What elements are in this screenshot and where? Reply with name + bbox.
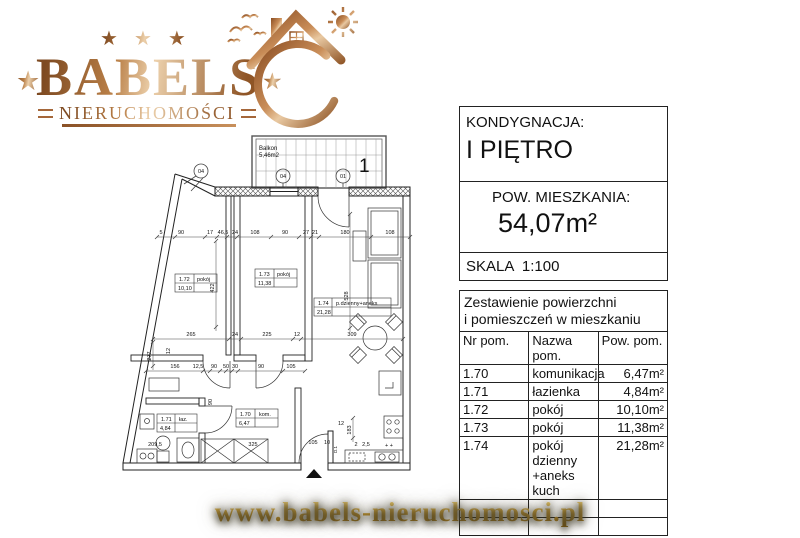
plan-label: 209,5 bbox=[148, 442, 162, 448]
scale-label: SKALA 1:100 bbox=[466, 258, 661, 275]
table-row: 1.73 pokój 11,38m² bbox=[460, 418, 668, 436]
entrance-marker bbox=[306, 469, 322, 478]
flyer-page: ★ ★ ★ ★ BABELS ★ NIERUCHOMOŚCI bbox=[0, 0, 800, 538]
plan-label: 50 bbox=[223, 364, 229, 370]
plan-label: 2,5 bbox=[362, 442, 370, 448]
plan-label: 12 bbox=[166, 348, 172, 354]
plan-label: 12,5 bbox=[193, 364, 204, 370]
plan-label: Balkon bbox=[259, 146, 277, 152]
cell-name: komunikacja bbox=[529, 364, 598, 382]
dimension-lines bbox=[144, 212, 412, 442]
plan-label: 90 bbox=[178, 230, 184, 236]
cell-nr: 1.70 bbox=[460, 364, 529, 382]
plan-label: 01 bbox=[340, 174, 346, 180]
plan-label: 24 bbox=[232, 230, 238, 236]
header-area: Pow. pom. bbox=[598, 331, 667, 364]
plan-label: D.1 bbox=[333, 446, 338, 454]
door-arcs bbox=[203, 196, 349, 463]
plan-label: 1.72 bbox=[179, 277, 190, 283]
plan-label: pokój bbox=[197, 277, 210, 283]
brand-subtitle: NIERUCHOMOŚCI bbox=[59, 103, 235, 124]
area-box: POW. MIESZKANIA: 54,07m² bbox=[460, 182, 667, 253]
cell-area: 4,84m² bbox=[598, 382, 667, 400]
double-line-ornament bbox=[38, 109, 53, 118]
plan-label: 11,38 bbox=[258, 281, 271, 287]
birds-icon bbox=[228, 15, 266, 42]
plan-label: 30 bbox=[232, 364, 238, 370]
scale-box: SKALA 1:100 bbox=[460, 253, 667, 280]
house-sun-icon bbox=[226, 2, 361, 134]
plan-label: 265 bbox=[186, 332, 195, 338]
bed bbox=[353, 208, 401, 308]
plan-label: 309 bbox=[347, 332, 356, 338]
plan-label: 156 bbox=[170, 364, 179, 370]
plan-label: 12 bbox=[338, 421, 344, 427]
floor-box: KONDYGNACJA: I PIĘTRO bbox=[460, 107, 667, 182]
area-label: POW. MIESZKANIA: bbox=[492, 189, 661, 206]
plan-label: 1.70 bbox=[240, 412, 251, 418]
plan-label: 1.73 bbox=[259, 272, 270, 278]
dining-table bbox=[350, 314, 403, 364]
plan-label: 12 bbox=[294, 332, 300, 338]
plan-label: 24 bbox=[232, 332, 238, 338]
cell-name: pokój bbox=[529, 418, 598, 436]
plan-label: 180 bbox=[340, 230, 349, 236]
cell-area: 6,47m² bbox=[598, 364, 667, 382]
plan-label: 10,10 bbox=[178, 286, 192, 292]
plan-label: 90 bbox=[258, 364, 264, 370]
agency-logo: ★ ★ ★ ★ BABELS ★ NIERUCHOMOŚCI bbox=[8, 2, 438, 136]
plan-label: 528 bbox=[344, 291, 350, 300]
wardrobe-crossed bbox=[201, 439, 268, 463]
sun-icon bbox=[328, 7, 358, 37]
plan-label: 422 bbox=[210, 283, 216, 292]
plan-label: 6,47 bbox=[239, 421, 250, 427]
floor-label: KONDYGNACJA: bbox=[466, 114, 661, 131]
plan-label: 04 bbox=[280, 174, 286, 180]
cell-name: pokój bbox=[529, 400, 598, 418]
table-row: 1.70 komunikacja 6,47m² bbox=[460, 364, 668, 382]
info-panel: KONDYGNACJA: I PIĘTRO POW. MIESZKANIA: 5… bbox=[459, 106, 668, 536]
header-name: Nazwa pom. bbox=[529, 331, 598, 364]
plan-label: 105 bbox=[308, 440, 317, 446]
plan-label: 1.74 bbox=[318, 301, 329, 307]
cell-nr: 1.72 bbox=[460, 400, 529, 418]
plan-label: kom. bbox=[259, 412, 271, 418]
plan-label: 325 bbox=[248, 442, 257, 448]
plan-label: 108 bbox=[385, 230, 394, 236]
plan-label: 90 bbox=[282, 230, 288, 236]
plan-label: 277 bbox=[147, 351, 153, 360]
plan-label: 46,5 bbox=[218, 230, 229, 236]
floor-value: I PIĘTRO bbox=[466, 136, 661, 165]
summary-boxes: KONDYGNACJA: I PIĘTRO POW. MIESZKANIA: 5… bbox=[459, 106, 668, 281]
plan-label: 108 bbox=[250, 230, 259, 236]
table-title-line1: Zestawienie powierzchni bbox=[464, 294, 617, 310]
header-nr: Nr pom. bbox=[460, 331, 529, 364]
crescent-swoosh-icon bbox=[258, 44, 334, 124]
cell-nr: 1.73 bbox=[460, 418, 529, 436]
plan-label: 5 bbox=[159, 230, 162, 236]
plan-label: 105 bbox=[286, 364, 295, 370]
plan-label: 21,28 bbox=[317, 310, 331, 316]
table-header-row: Nr pom. Nazwa pom. Pow. pom. bbox=[460, 331, 668, 364]
plan-label: + + bbox=[385, 443, 393, 449]
plan-label: 183 bbox=[347, 425, 353, 434]
floor-plan-svg: Balkon5,46m204040111.72pokój10,101.73pok… bbox=[113, 126, 447, 484]
cell-area: 10,10m² bbox=[598, 400, 667, 418]
plan-label: p.dzienny+aneks bbox=[336, 301, 378, 307]
plan-label: 21 bbox=[312, 230, 318, 236]
area-value: 54,07m² bbox=[492, 208, 661, 239]
table-title: Zestawienie powierzchni i pomieszczeń w … bbox=[460, 291, 668, 332]
plan-label: 90 bbox=[208, 399, 214, 405]
cell-nr: 1.74 bbox=[460, 436, 529, 499]
plan-label: 1.71 bbox=[161, 417, 172, 423]
plan-label: 10 bbox=[324, 440, 330, 446]
room-label-boxes bbox=[157, 269, 391, 432]
plan-label: pokój bbox=[277, 272, 290, 278]
table-title-line2: i pomieszczeń w mieszkaniu bbox=[464, 311, 641, 327]
plan-label: 17 bbox=[207, 230, 213, 236]
plan-label: 04 bbox=[198, 169, 204, 175]
plan-label: 5,46m2 bbox=[259, 153, 280, 159]
table-row: 1.72 pokój 10,10m² bbox=[460, 400, 668, 418]
website-url[interactable]: www.babels-nieruchomosci.pl bbox=[0, 497, 800, 528]
logo-subtitle-row: NIERUCHOMOŚCI bbox=[38, 103, 256, 124]
table-row: 1.74 pokój dzienny +aneks kuch 21,28m² bbox=[460, 436, 668, 499]
plan-label: 4,84 bbox=[160, 426, 171, 432]
plan-label: 1 bbox=[359, 156, 370, 177]
cell-area: 21,28m² bbox=[598, 436, 667, 499]
plan-label: 90 bbox=[211, 364, 217, 370]
cell-name: pokój dzienny +aneks kuch bbox=[529, 436, 598, 499]
plan-label: 27 bbox=[303, 230, 309, 236]
table-title-row: Zestawienie powierzchni i pomieszczeń w … bbox=[460, 291, 668, 332]
plan-label: 2 bbox=[354, 442, 357, 448]
cell-nr: 1.71 bbox=[460, 382, 529, 400]
plan-label: 225 bbox=[262, 332, 271, 338]
cell-name: łazienka bbox=[529, 382, 598, 400]
plan-label: łaz. bbox=[179, 417, 188, 423]
table-row: 1.71 łazienka 4,84m² bbox=[460, 382, 668, 400]
cell-area: 11,38m² bbox=[598, 418, 667, 436]
